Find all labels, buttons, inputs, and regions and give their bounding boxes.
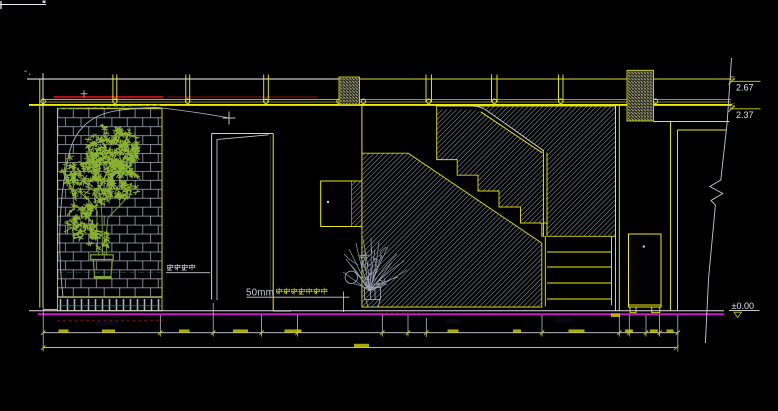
svg-text:2.37: 2.37 (736, 110, 754, 120)
svg-text:±0.00: ±0.00 (732, 301, 754, 311)
svg-text:25: 25 (730, 104, 736, 110)
svg-text:2.67: 2.67 (736, 83, 754, 93)
